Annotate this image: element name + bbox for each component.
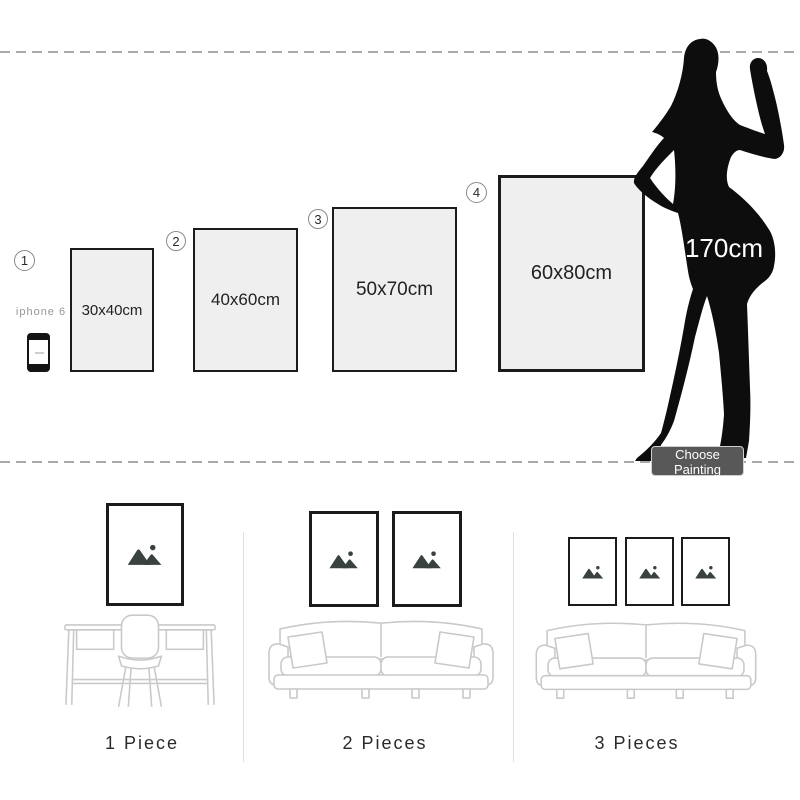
size-option-frame-60x80[interactable]: 60x80cm — [498, 175, 645, 372]
size-option-frame-40x60[interactable]: 40x60cm — [193, 228, 298, 372]
preview-label-2-pieces: 2 Pieces — [325, 733, 445, 754]
preview-frame-pair — [392, 511, 462, 607]
preview-label-3-pieces: 3 Pieces — [577, 733, 697, 754]
mountain-icon — [694, 565, 718, 579]
size-option-frame-50x70[interactable]: 50x70cm — [332, 207, 457, 372]
preview-frame-single — [106, 503, 184, 606]
size-label: 50x70cm — [356, 279, 433, 301]
desk-and-chair-icon — [62, 612, 218, 712]
phone-screen — [29, 340, 48, 364]
phone-bottom-bezel — [29, 364, 48, 370]
mountain-icon — [328, 550, 360, 569]
mountain-icon — [638, 565, 662, 579]
preview-frame-triple — [625, 537, 674, 606]
preview-frame-triple — [681, 537, 730, 606]
preview-frame-pair — [309, 511, 379, 607]
mountain-icon — [581, 565, 605, 579]
phone-icon — [27, 333, 50, 372]
size-label: 60x80cm — [531, 262, 612, 285]
sofa-icon — [531, 613, 761, 708]
preview-label-1-piece: 1 Piece — [82, 733, 202, 754]
preview-divider — [513, 532, 514, 762]
preview-divider — [243, 532, 244, 762]
size-label: 40x60cm — [211, 290, 280, 310]
model-height-label: 170cm — [680, 233, 768, 264]
size-number-badge-1: 1 — [14, 250, 35, 271]
sofa-icon — [266, 611, 496, 708]
size-guide-infographic: 1 2 3 4 30x40cm 40x60cm 50x70cm 60x80cm … — [0, 0, 800, 800]
mountain-icon — [411, 550, 443, 569]
mountain-icon — [126, 543, 164, 566]
preview-frame-triple — [568, 537, 617, 606]
size-number-badge-3: 3 — [308, 209, 328, 229]
size-number-badge-4: 4 — [466, 182, 487, 203]
choose-painting-button[interactable]: Choose Painting — [651, 446, 744, 476]
phone-reference-label: iphone 6 — [5, 306, 77, 318]
size-label: 30x40cm — [82, 302, 143, 319]
size-option-frame-30x40[interactable]: 30x40cm — [70, 248, 154, 372]
size-number-badge-2: 2 — [166, 231, 186, 251]
